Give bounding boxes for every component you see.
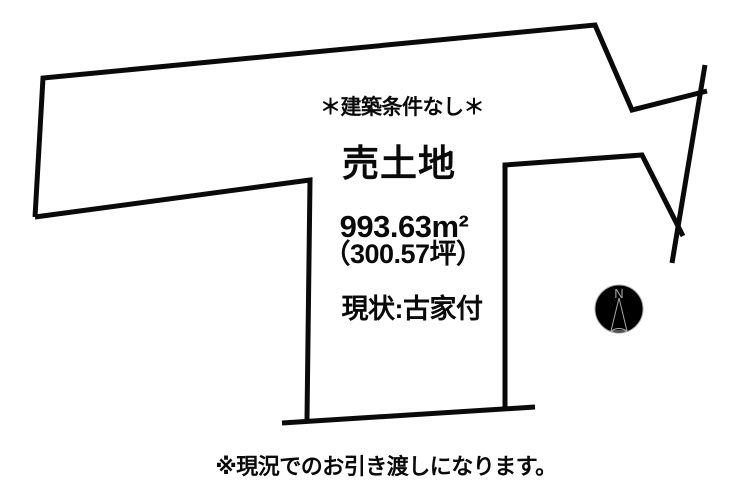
sale-title: 売土地 <box>342 145 456 182</box>
delivery-condition-note: ※現況でのお引き渡しになります。 <box>215 456 556 478</box>
area-tsubo: （300.57坪） <box>323 241 482 268</box>
area-square-meters: 993.63m² <box>340 211 469 242</box>
plot-boundary-right-stem <box>505 155 683 409</box>
building-condition-note: ＊建築条件なし＊ <box>320 97 484 118</box>
plot-boundary-top <box>35 25 707 217</box>
compass-n-label: N <box>614 286 623 301</box>
plot-boundary-left-stem <box>35 180 310 419</box>
land-plot-diagram: N ＊建築条件なし＊ 売土地 993.63m² （300.57坪） 現状:古家付… <box>0 0 740 499</box>
road-frontage-line <box>282 407 535 423</box>
north-compass: N <box>595 285 643 333</box>
current-state-label: 現状:古家付 <box>342 296 483 323</box>
